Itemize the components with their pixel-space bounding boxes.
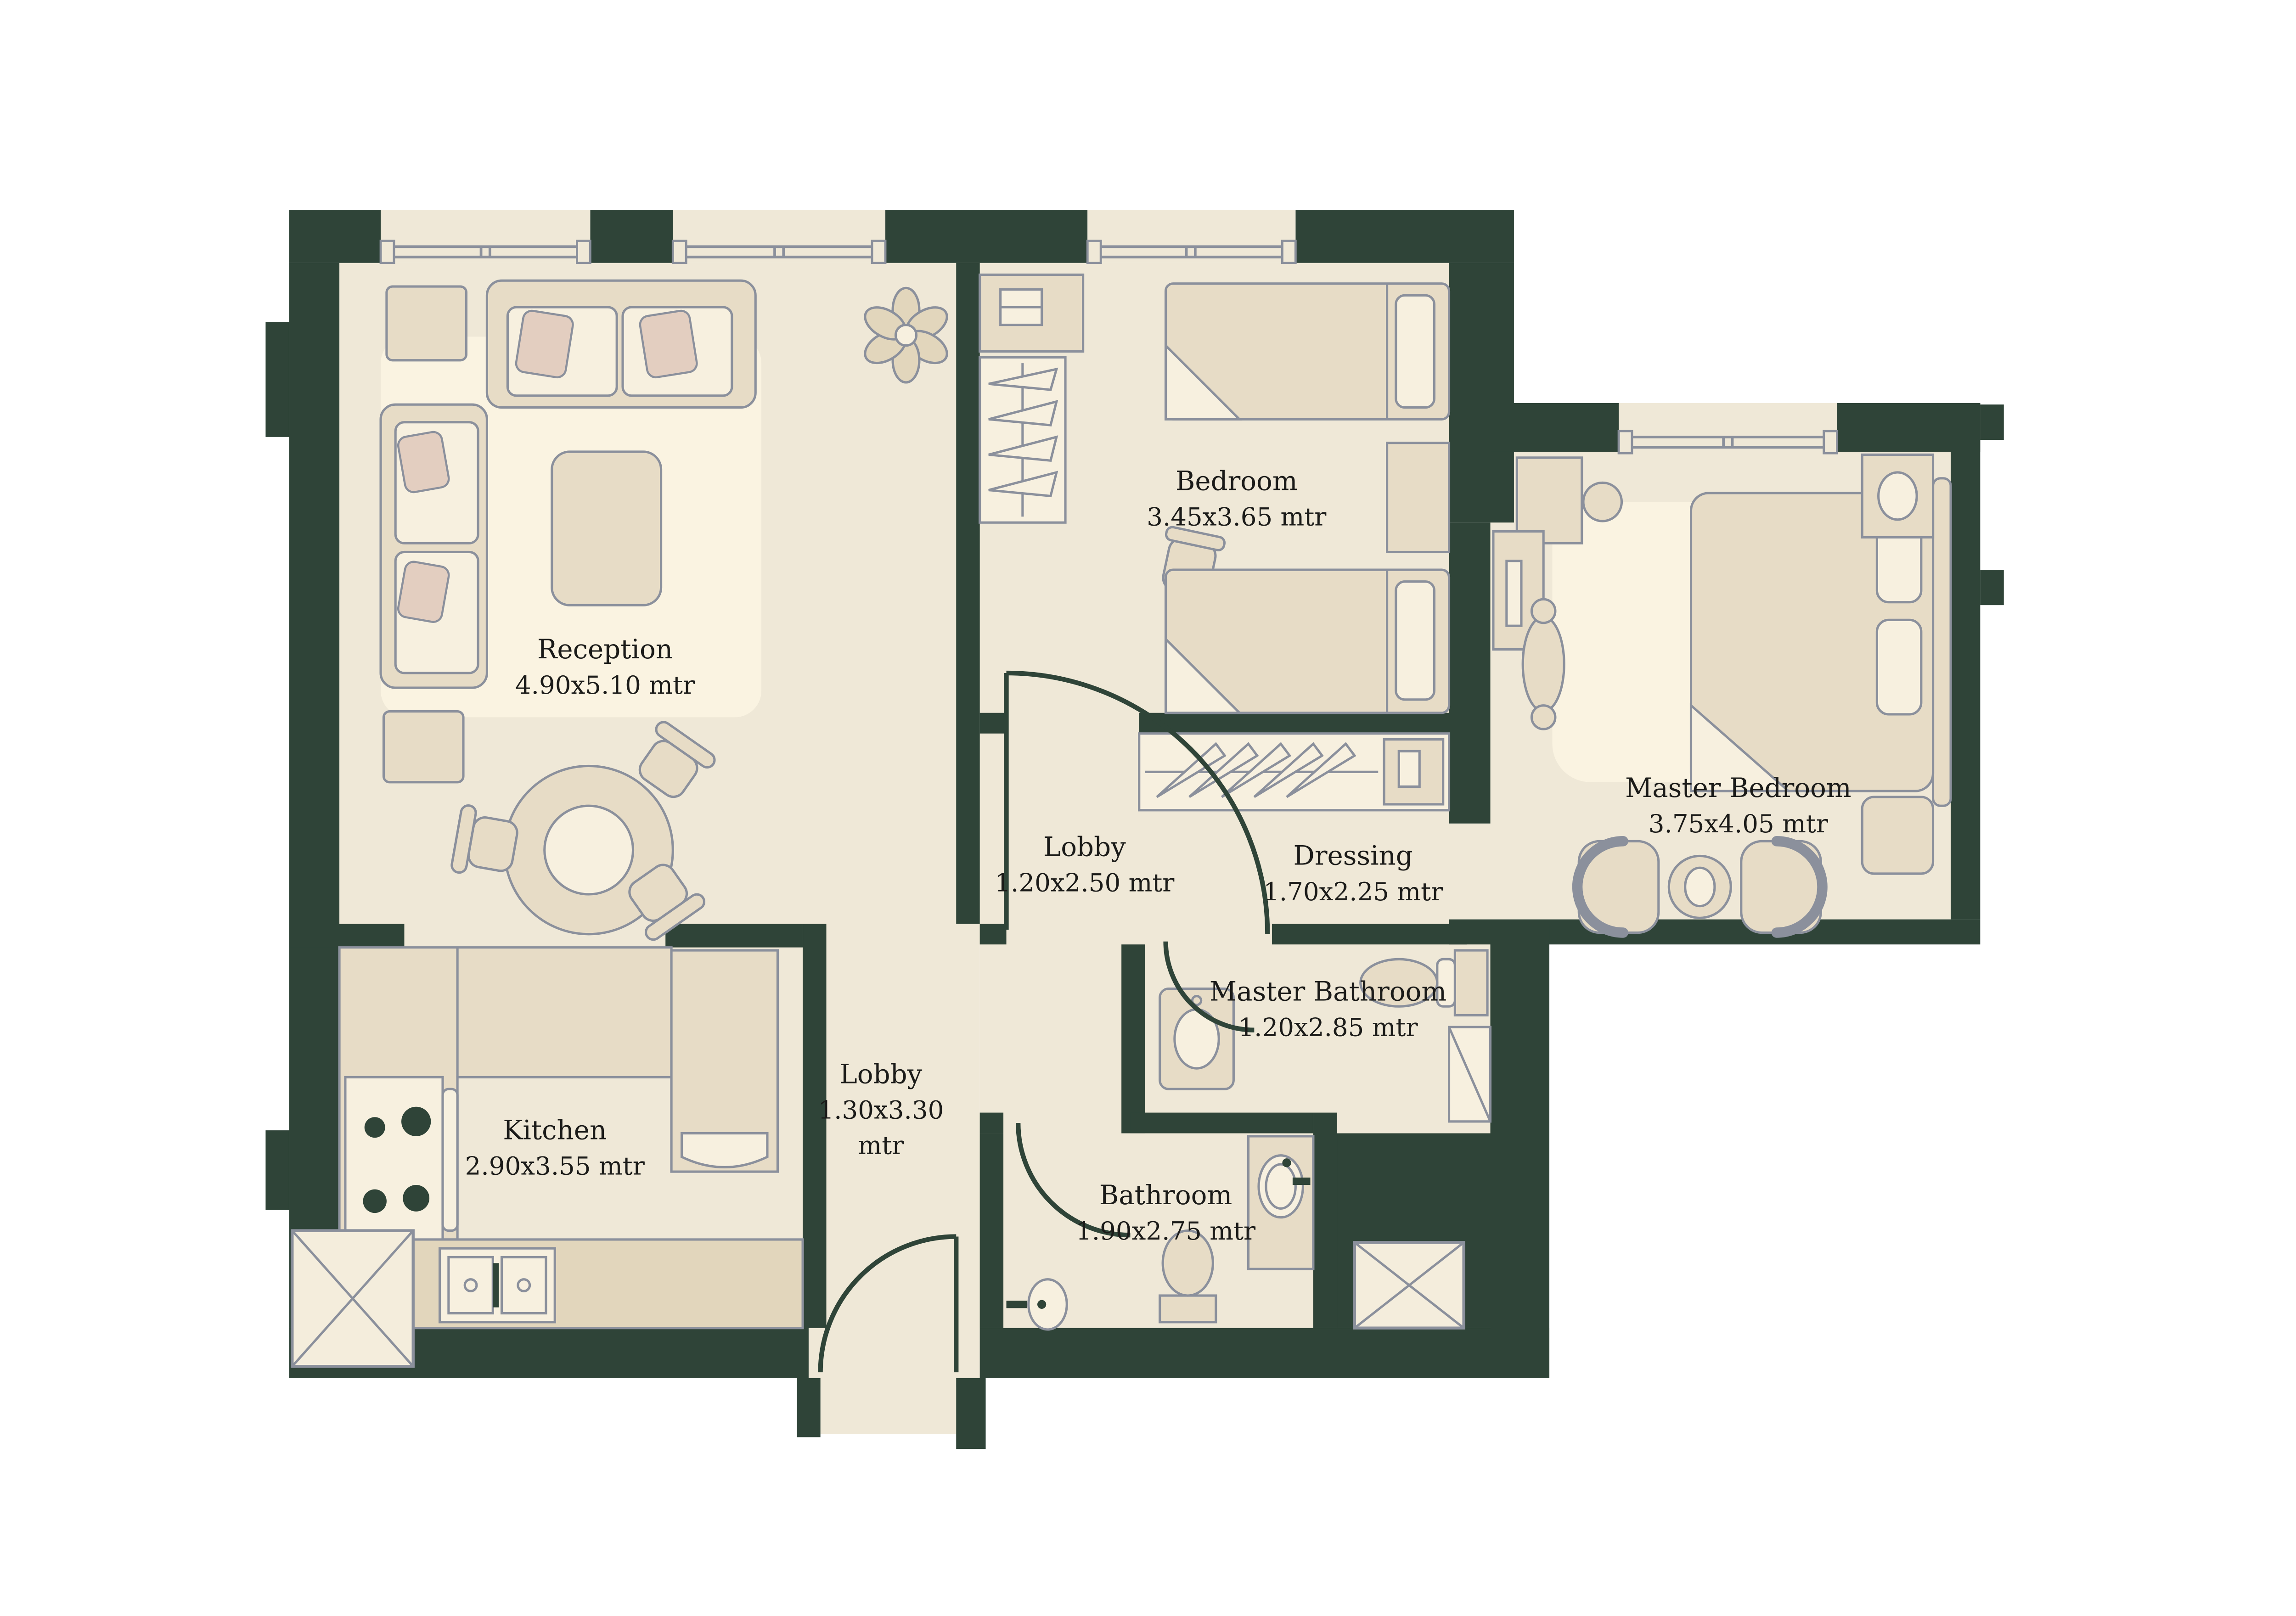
svg-text:3.75x4.05 mtr: 3.75x4.05 mtr [1649,809,1829,838]
fridge [671,950,777,1172]
vanity-chair [1583,483,1622,521]
svg-text:Reception: Reception [537,634,673,665]
shower [1449,1027,1491,1122]
svg-text:4.90x5.10 mtr: 4.90x5.10 mtr [515,670,695,700]
svg-text:1.30x3.30: 1.30x3.30 [818,1095,944,1124]
window-master-bedroom [1619,403,1837,453]
nightstand-bottom [1862,797,1933,874]
seating-set [1577,841,1822,932]
svg-text:Lobby: Lobby [1043,831,1126,862]
floor-plan-canvas: Reception 4.90x5.10 mtr Bedroom 3.45x3.6… [0,0,2296,1616]
shaft-bathroom [1355,1242,1464,1328]
svg-text:Kitchen: Kitchen [503,1114,607,1145]
stove [345,1077,457,1242]
svg-text:Bathroom: Bathroom [1099,1179,1232,1211]
vanity-sink [1249,1136,1313,1269]
sofa-three-seat [487,281,755,407]
svg-text:1.90x2.75 mtr: 1.90x2.75 mtr [1076,1216,1256,1246]
nightstand [1387,443,1449,552]
pillow [1877,620,1921,714]
side-table [387,286,467,360]
svg-text:1.70x2.25 mtr: 1.70x2.25 mtr [1263,877,1443,906]
closet-cabinet [1384,740,1443,804]
wardrobe [980,357,1065,522]
shaft-bottom-left [292,1231,413,1367]
svg-text:Master Bathroom: Master Bathroom [1210,976,1446,1007]
svg-text:Dressing: Dressing [1293,840,1412,871]
headboard [1933,478,1951,806]
desk [980,275,1083,351]
window-reception-left [381,210,590,263]
window-bedroom [1087,210,1295,263]
svg-text:Master Bedroom: Master Bedroom [1625,772,1851,803]
svg-text:2.90x3.55 mtr: 2.90x3.55 mtr [465,1151,645,1181]
sofa-two-seat [381,404,487,688]
floor-plan-svg: Reception 4.90x5.10 mtr Bedroom 3.45x3.6… [0,0,2296,1616]
single-bed-bottom [1166,570,1449,713]
svg-text:mtr: mtr [858,1131,904,1160]
window-reception-right [673,210,885,263]
single-bed-top [1166,284,1449,420]
svg-text:1.20x2.85 mtr: 1.20x2.85 mtr [1238,1012,1418,1042]
side-table [383,712,463,782]
coffee-table [552,452,661,605]
svg-text:1.20x2.50 mtr: 1.20x2.50 mtr [995,868,1175,898]
svg-text:3.45x3.65 mtr: 3.45x3.65 mtr [1147,502,1327,532]
svg-text:Bedroom: Bedroom [1176,466,1298,497]
svg-text:Lobby: Lobby [839,1058,922,1089]
nightstand-top [1862,454,1933,537]
